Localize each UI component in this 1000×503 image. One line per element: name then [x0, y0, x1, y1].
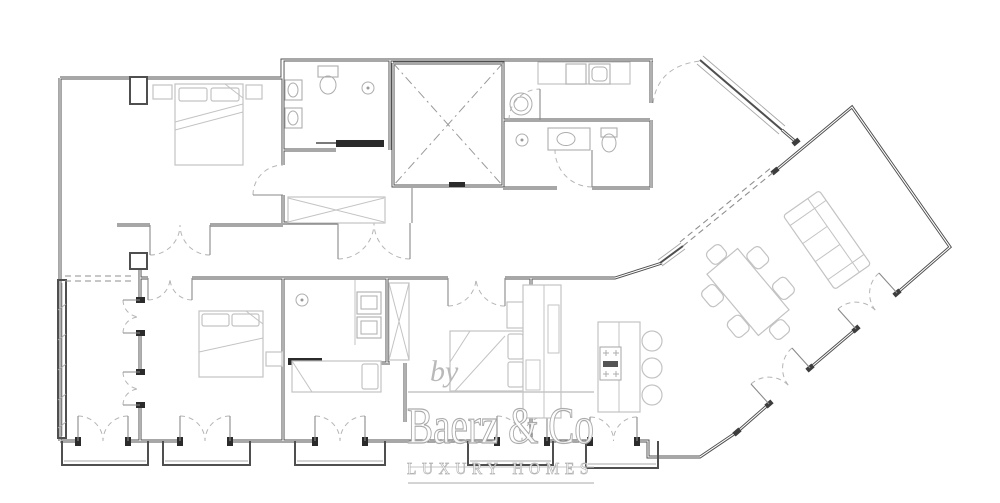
laundry-sink-icon: [510, 93, 532, 115]
nightstand-icon: [153, 85, 172, 99]
ensuite-bathroom-fixtures: [296, 280, 381, 345]
kitchen-island-icon: [598, 322, 662, 412]
bar-stool-icon: [642, 358, 662, 378]
bedroom2-bed-icon: [199, 311, 282, 377]
floor-plan-page: by Baerz & Co LUXURY HOMES: [0, 0, 1000, 503]
sofa-icon: [783, 191, 871, 290]
living-opening-dashed-line: [680, 167, 775, 246]
cooktop-icon: [600, 347, 621, 380]
bar-stool-icon: [642, 385, 662, 405]
shaft-cross-icon: [393, 63, 503, 186]
balcony-dashed-line: [65, 276, 133, 281]
nightstand-icon: [246, 85, 262, 99]
furniture: [153, 62, 871, 418]
shaft-hatch: [449, 182, 465, 187]
daybed-icon: [292, 361, 381, 392]
nightstand-icon: [266, 352, 282, 366]
vanity-icon: [548, 128, 590, 150]
bathroom-fixtures: [516, 128, 617, 152]
bedroom3-bed-icon: [450, 302, 526, 391]
master-bathroom-fixtures: [285, 66, 374, 128]
laundry-room-fixtures: [510, 62, 630, 115]
wardrobe-icon: [389, 283, 409, 360]
pillar: [130, 77, 147, 104]
dining-table-icon: [682, 224, 813, 360]
pillar: [130, 253, 147, 269]
watermark-by: by: [430, 355, 459, 388]
entry-glazed-wall: [697, 56, 785, 134]
toilet-icon: [601, 128, 617, 137]
nightstand-icon: [507, 302, 525, 328]
watermark-tagline: LUXURY HOMES: [407, 459, 594, 478]
wardrobe-icon: [288, 197, 385, 223]
toilet-icon: [318, 66, 338, 77]
watermark-brand: Baerz & Co: [407, 398, 594, 455]
floor-plan-svg: by Baerz & Co LUXURY HOMES: [0, 0, 1000, 503]
bar-stool-icon: [642, 331, 662, 351]
elevator-shaft: [393, 63, 503, 187]
master-bed-icon: [153, 84, 262, 165]
living-corner-window: [658, 243, 685, 266]
